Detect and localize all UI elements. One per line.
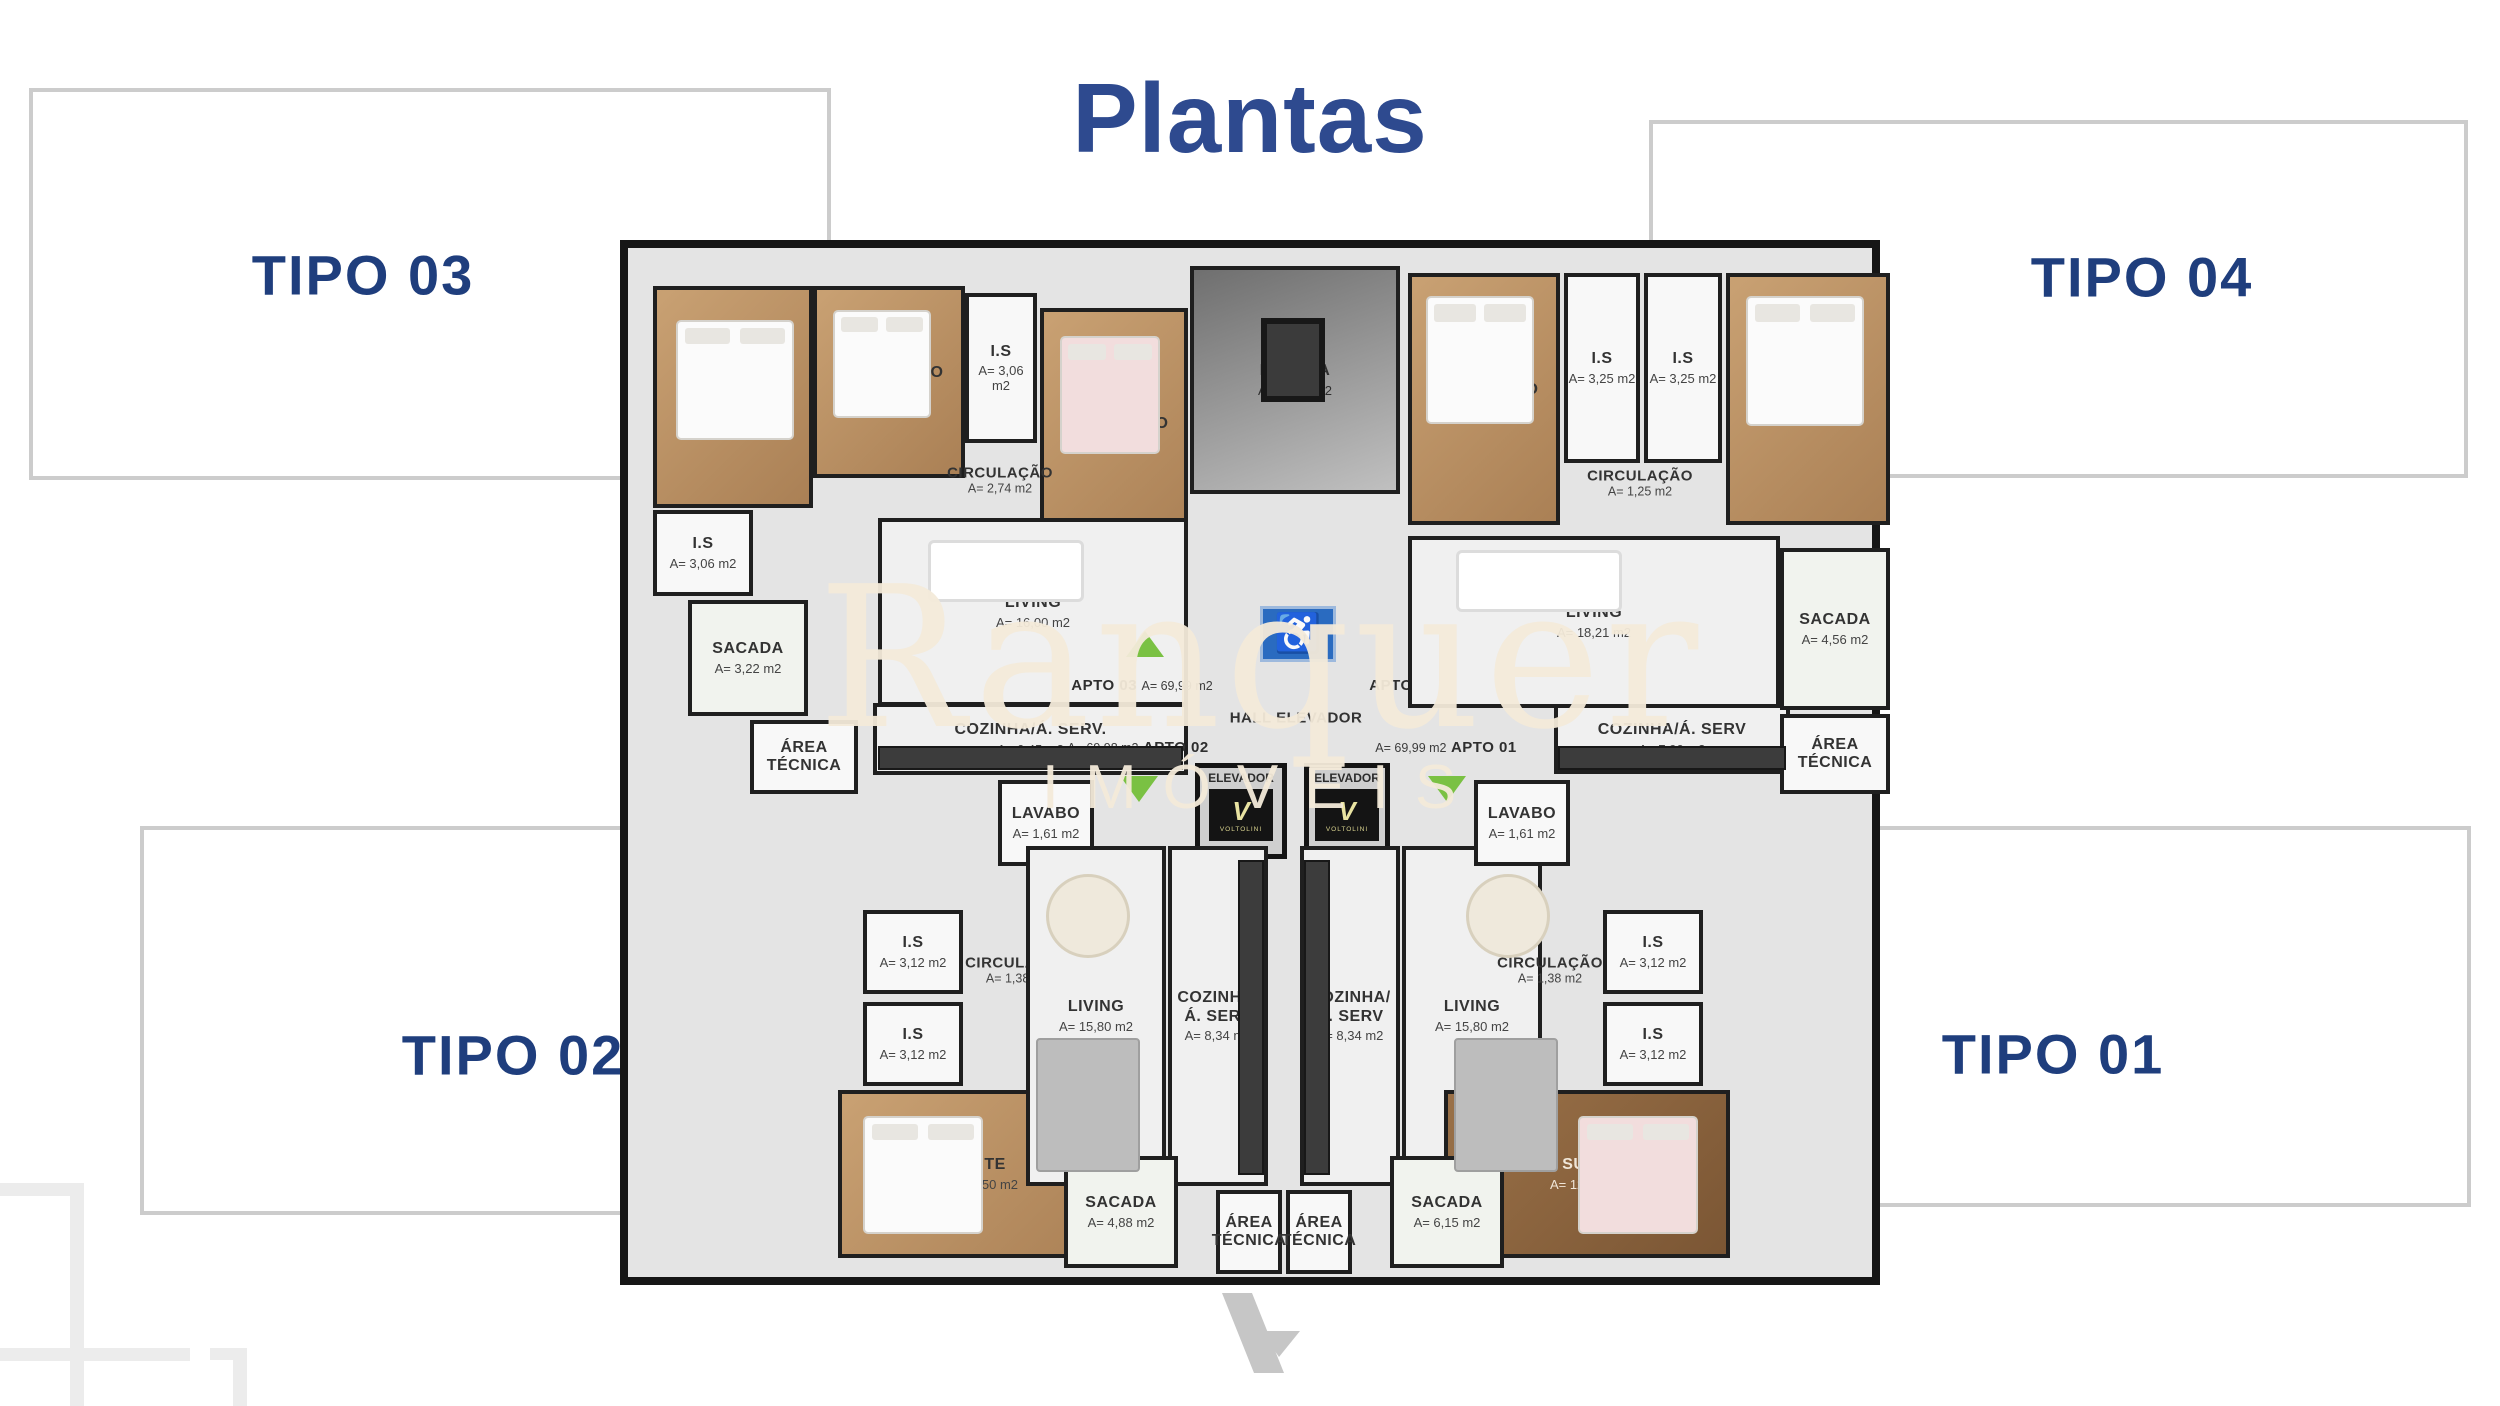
elevator-1: ELEVADOR V VOLTOLINI — [1195, 763, 1287, 859]
bed — [1578, 1116, 1698, 1234]
bed — [833, 310, 931, 418]
apto01-tag: A= 69,99 m2 APTO 01 — [1375, 739, 1516, 757]
room-sacada-tipo03: SACADA A= 3,22 m2 — [688, 600, 808, 716]
label-circulacao-tipo01: CIRCULAÇÃO A= 1,38 m2 — [1497, 955, 1603, 986]
voltolini-plaque: V VOLTOLINI — [1315, 789, 1379, 841]
dining-table — [1456, 550, 1622, 612]
label-circulacao-tipo03: CIRCULAÇÃO A= 2,74 m2 — [947, 465, 1053, 496]
kitchen-counter — [1558, 746, 1786, 770]
room-sacada-tipo01: SACADA A= 6,15 m2 — [1390, 1156, 1504, 1268]
room-is2-tipo04: I.S A= 3,25 m2 — [1644, 273, 1722, 463]
sofa — [1036, 1038, 1140, 1172]
label-hall-elevador: HALL ELEVADOR — [1230, 710, 1363, 727]
kitchen-counter — [1304, 860, 1330, 1175]
room-sacada-tipo02: SACADA A= 4,88 m2 — [1064, 1156, 1178, 1268]
room-is2-tipo01: I.S A= 3,12 m2 — [1603, 1002, 1703, 1086]
dining-table — [928, 540, 1084, 602]
room-is1-tipo01: I.S A= 3,12 m2 — [1603, 910, 1703, 994]
entry-arrow-down-icon — [1120, 776, 1158, 802]
corner-frame-decoration — [0, 1183, 84, 1196]
corner-frame-decoration — [70, 1183, 84, 1406]
accessibility-icon: ♿ — [1260, 606, 1336, 662]
entry-arrow-down-icon — [1428, 776, 1466, 802]
kitchen-counter — [878, 746, 1183, 770]
entry-arrow-up-icon — [1126, 631, 1164, 657]
elevator-2: ELEVADOR V VOLTOLINI — [1304, 763, 1390, 859]
room-area-tecnica-tipo04: ÁREA TÉCNICA — [1780, 714, 1890, 794]
bed — [676, 320, 794, 440]
room-area-tecnica-tipo03: ÁREA TÉCNICA — [750, 720, 858, 794]
label-circulacao-tipo04: CIRCULAÇÃO A= 1,25 m2 — [1587, 468, 1693, 499]
voltolini-logo — [1208, 1293, 1312, 1377]
room-area-tecnica-tipo02: ÁREA TÉCNICA — [1216, 1190, 1282, 1274]
room-is2-tipo02: I.S A= 3,12 m2 — [863, 1002, 963, 1086]
corner-frame-decoration — [233, 1348, 247, 1406]
sofa — [1454, 1038, 1558, 1172]
kitchen-counter — [1238, 860, 1264, 1175]
room-is2-tipo03: I.S A= 3,06 m2 — [653, 510, 753, 596]
bed — [863, 1116, 983, 1234]
tipo01-label: TIPO 01 — [1942, 1022, 2165, 1087]
room-is1-tipo02: I.S A= 3,12 m2 — [863, 910, 963, 994]
bed — [1426, 296, 1534, 424]
room-is1-tipo04: I.S A= 3,25 m2 — [1564, 273, 1640, 463]
apto03-tag: APTO 03 A= 69,99 m2 — [1071, 677, 1212, 695]
bed — [1746, 296, 1864, 426]
voltolini-plaque: V VOLTOLINI — [1209, 789, 1273, 841]
stair-void — [1261, 318, 1325, 402]
room-is1-tipo03: I.S A= 3,06 m2 — [965, 293, 1037, 443]
bed — [1060, 336, 1160, 454]
tipo03-label: TIPO 03 — [252, 243, 475, 308]
room-lavabo-tipo01: LAVABO A= 1,61 m2 — [1474, 780, 1570, 866]
room-sacada-tipo04: SACADA A= 4,56 m2 — [1780, 548, 1890, 710]
corner-frame-decoration — [0, 1348, 190, 1361]
tipo04-label: TIPO 04 — [2031, 245, 2254, 310]
room-area-tecnica-tipo01: ÁREA TÉCNICA — [1286, 1190, 1352, 1274]
round-dining-table — [1046, 874, 1130, 958]
floor-plan: SUITE A= 10,71 m2 DORMITÓRIO A= 7,96 m2 … — [620, 240, 1880, 1285]
tipo02-label: TIPO 02 — [402, 1023, 625, 1088]
round-dining-table — [1466, 874, 1550, 958]
